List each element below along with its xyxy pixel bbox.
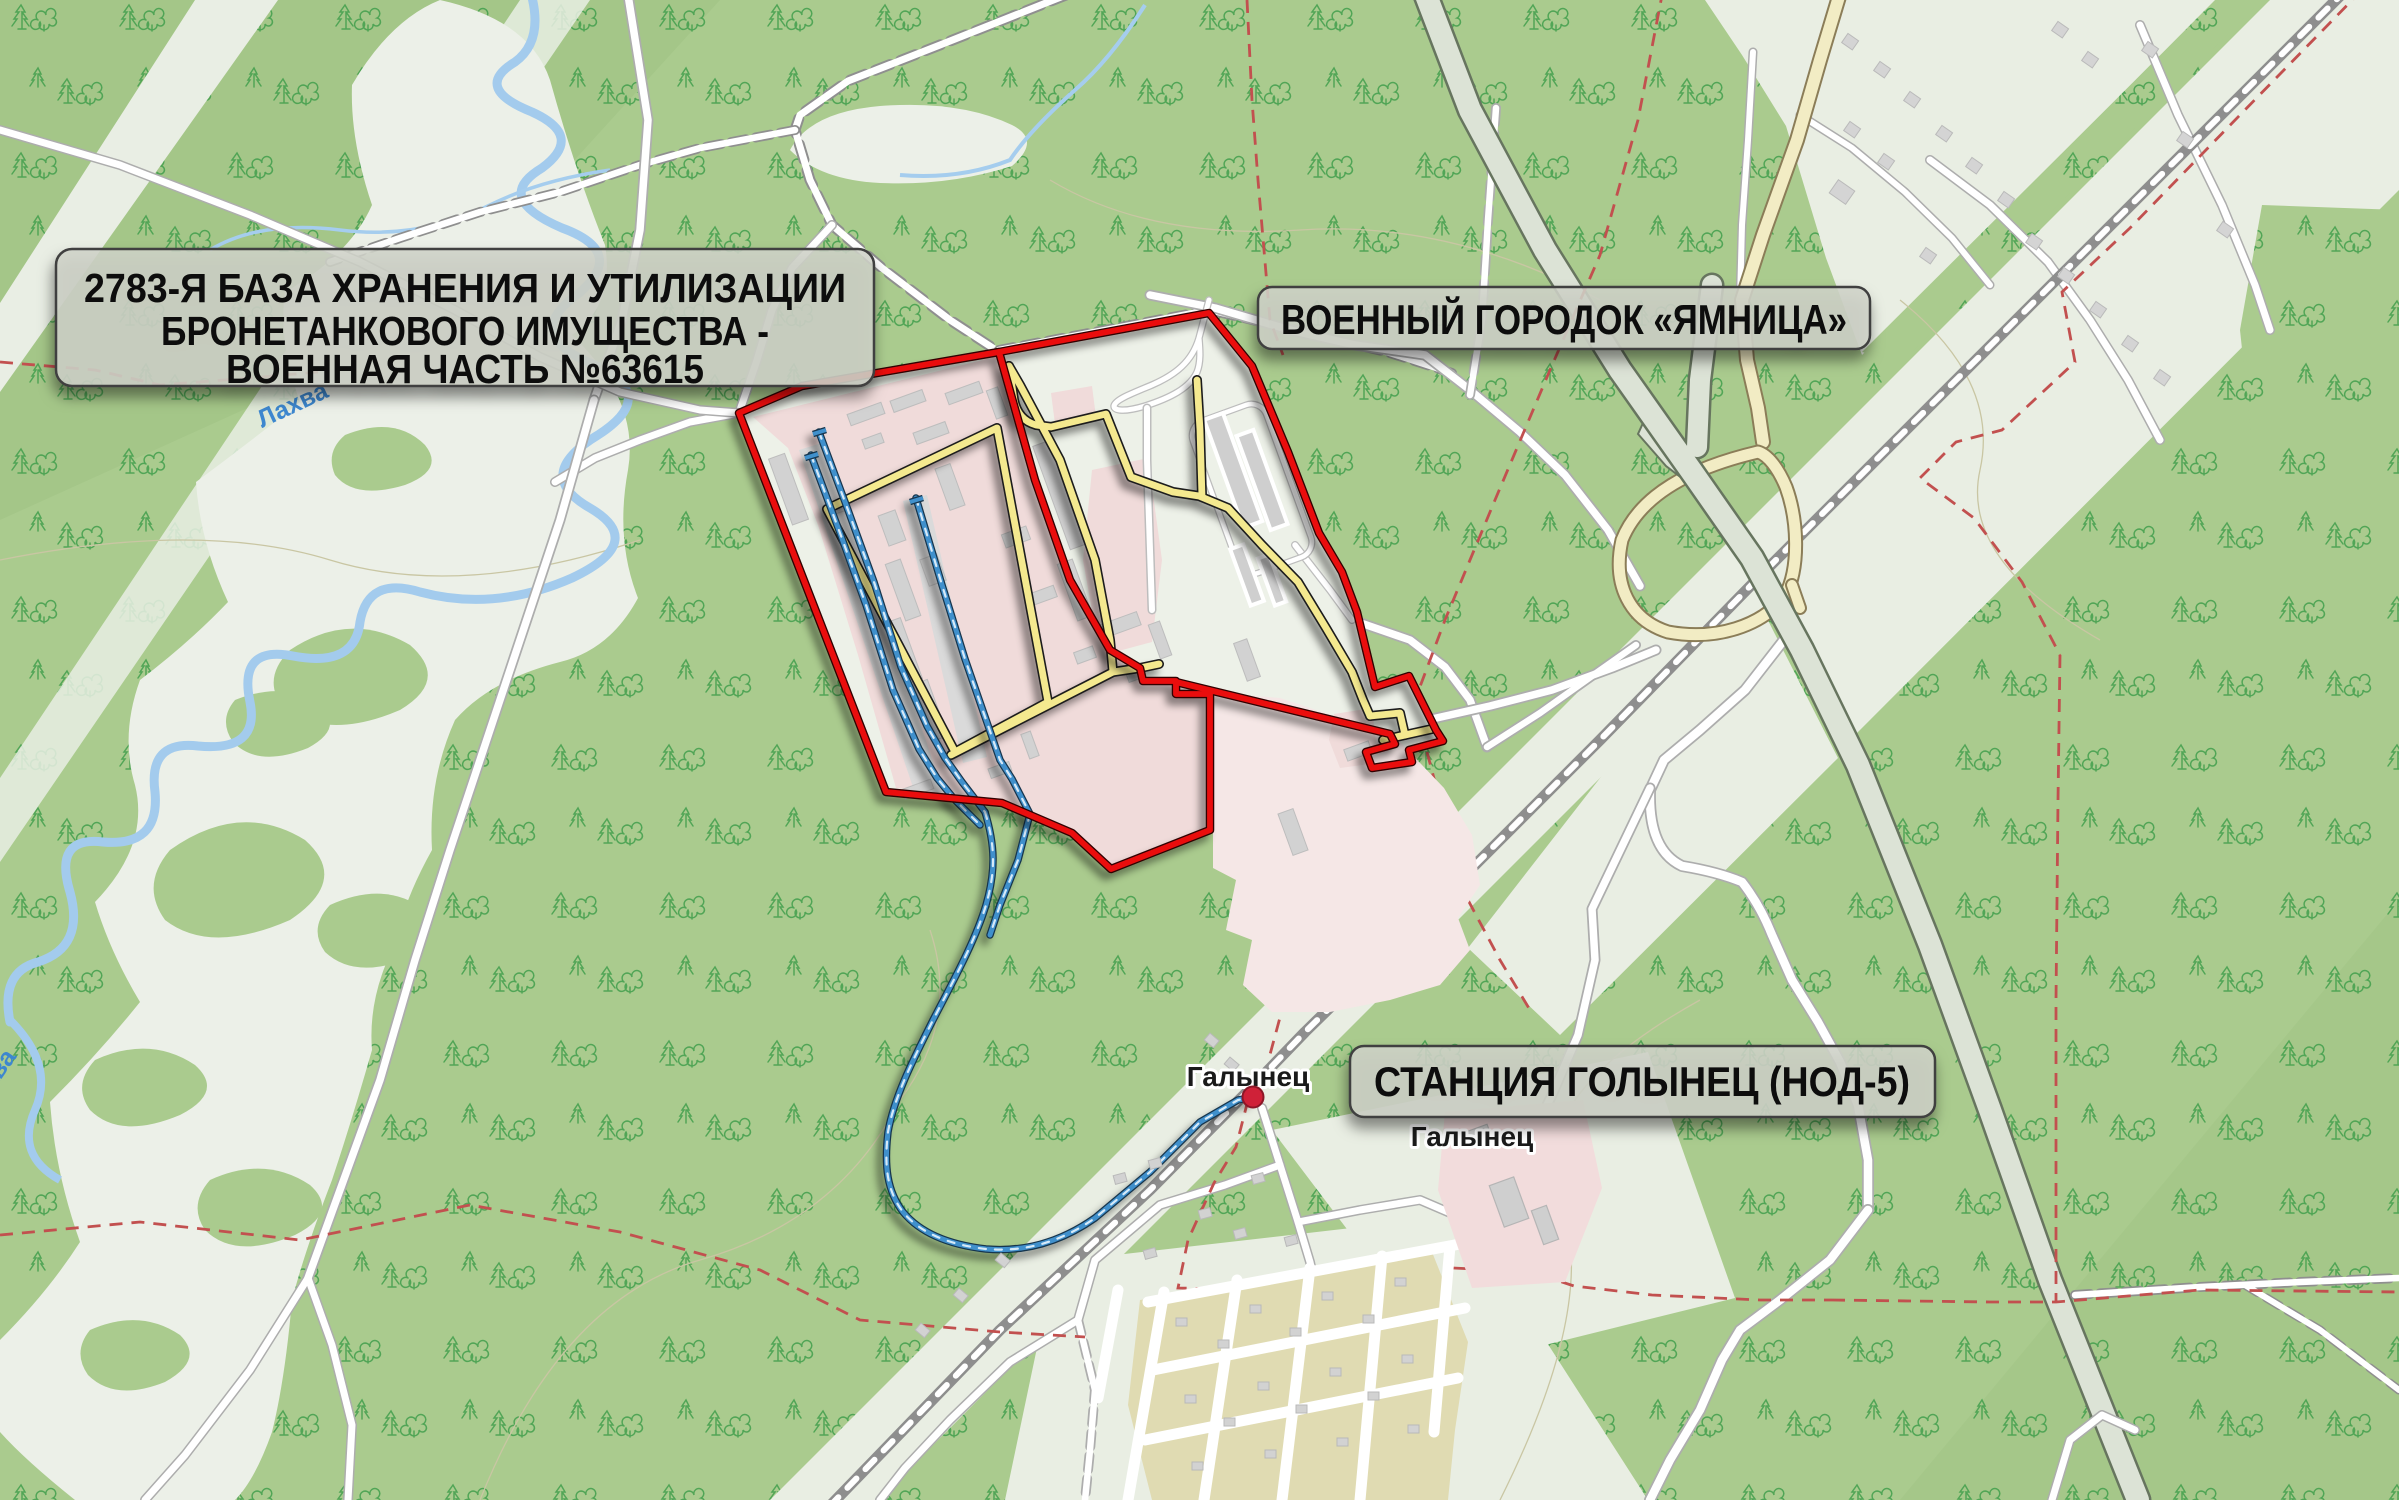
svg-text:2783-Я БАЗА ХРАНЕНИЯ И УТИЛИЗА: 2783-Я БАЗА ХРАНЕНИЯ И УТИЛИЗАЦИИ [84,265,846,311]
svg-text:Галынец: Галынец [1411,1121,1533,1152]
svg-text:ВОЕННЫЙ ГОРОДОК «ЯМНИЦА»: ВОЕННЫЙ ГОРОДОК «ЯМНИЦА» [1281,295,1847,343]
svg-text:СТАНЦИЯ ГОЛЫНЕЦ (НОД-5): СТАНЦИЯ ГОЛЫНЕЦ (НОД-5) [1374,1058,1910,1105]
svg-text:ВОЕННАЯ ЧАСТЬ №63615: ВОЕННАЯ ЧАСТЬ №63615 [226,346,704,392]
